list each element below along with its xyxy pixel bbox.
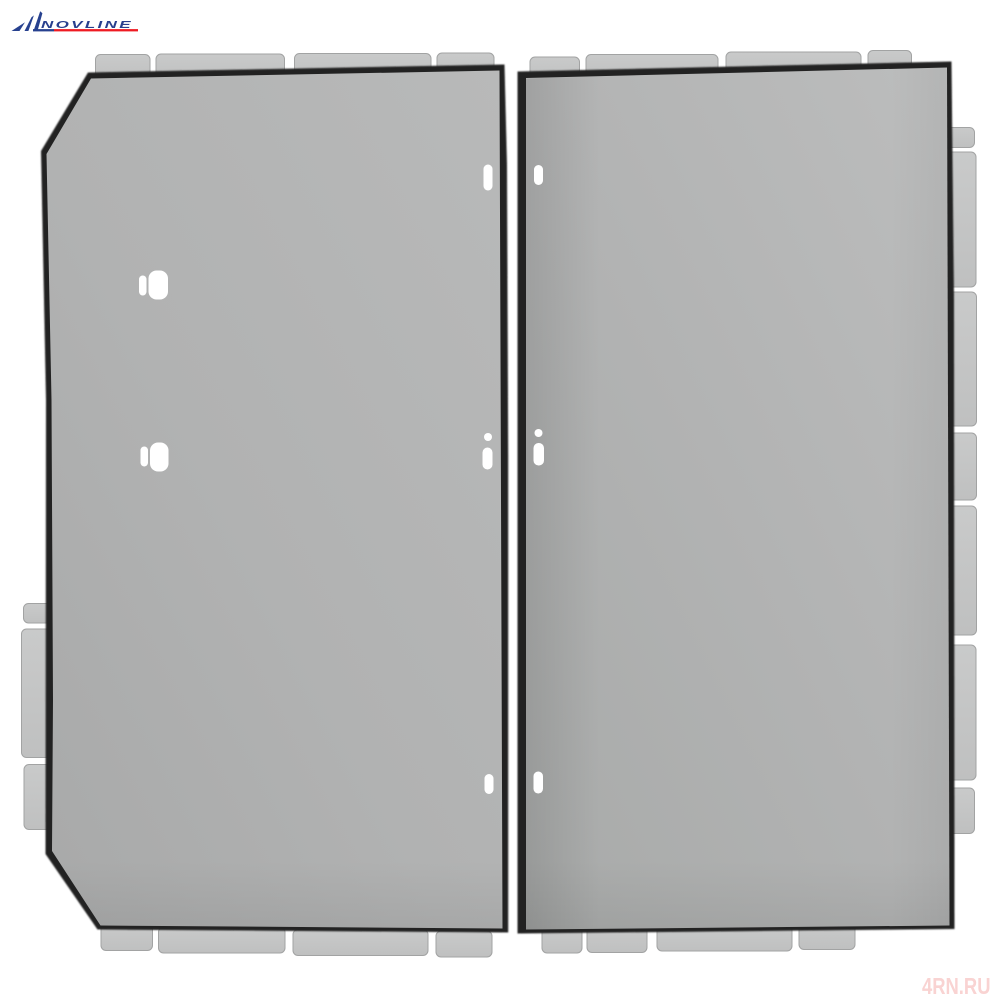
svg-text:NOVLINE: NOVLINE <box>41 19 133 30</box>
svg-text:4RN.RU: 4RN.RU <box>922 974 990 1000</box>
